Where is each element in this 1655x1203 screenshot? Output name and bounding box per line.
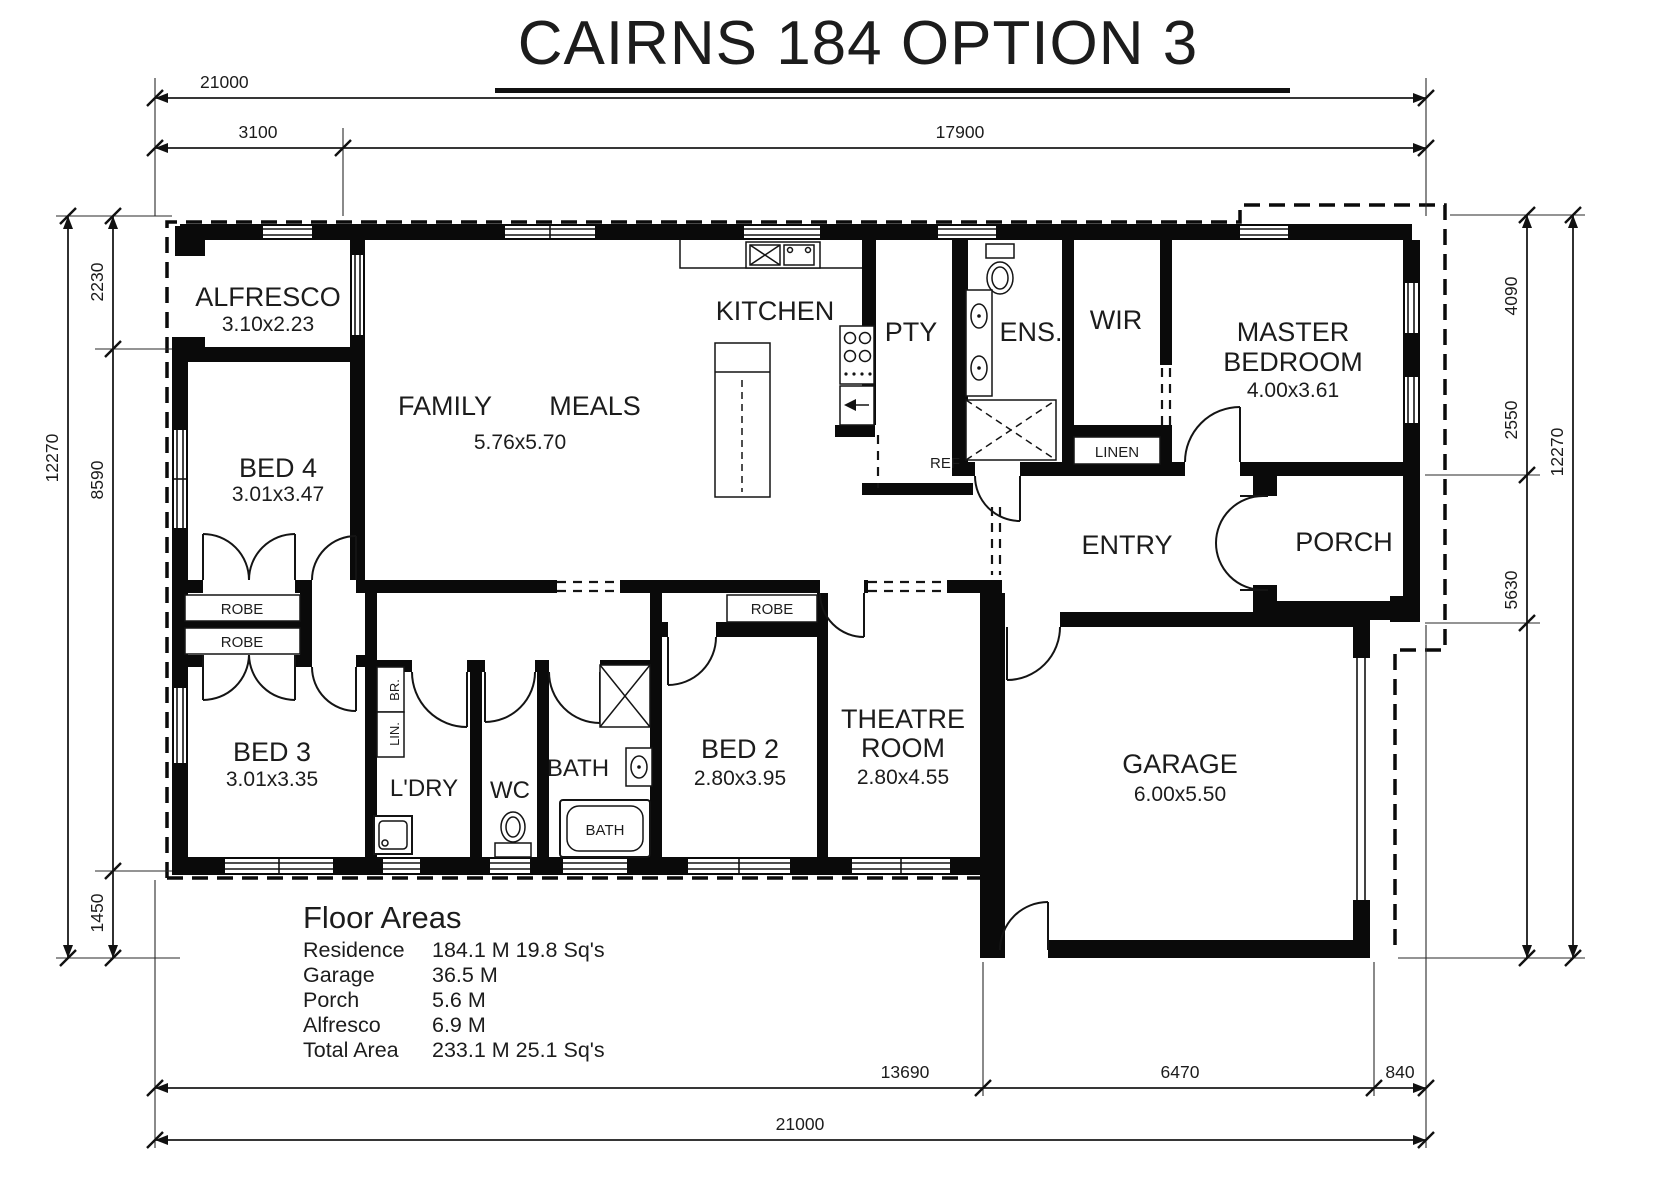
door-arc-robe-bed4 (203, 534, 295, 580)
dim-top-17900: 17900 (936, 122, 985, 142)
floor-area-label: Alfresco (303, 1013, 381, 1037)
dim-bottom-13690: 13690 (881, 1062, 930, 1082)
label-porch: PORCH (1295, 527, 1393, 557)
dim-top-3100: 3100 (239, 122, 278, 142)
title-underline (495, 88, 1290, 93)
vanity-basin-icon (626, 748, 652, 786)
door-arc-entry-double (1216, 496, 1268, 590)
floor-plan-drawing: CAIRNS 184 OPTION 3 (0, 0, 1655, 1203)
label-bed2: BED 2 (701, 734, 779, 764)
kitchen-bench-icon (680, 240, 862, 268)
dim-right-5630: 5630 (1501, 570, 1521, 609)
toilet-icon (495, 812, 531, 857)
dim-right-12270: 12270 (1547, 427, 1567, 476)
dim-left-2230: 2230 (87, 262, 107, 301)
label-pty: PTY (885, 317, 938, 347)
floor-area-label: Total Area (303, 1038, 399, 1062)
label-bath-tub: BATH (586, 822, 625, 839)
door-arc-bed4 (312, 536, 356, 580)
label-linen: LINEN (1095, 444, 1139, 461)
garage-panel-door-icon (1357, 658, 1365, 900)
dim-left-12270: 12270 (42, 433, 62, 482)
dim-top-total: 21000 (147, 72, 1434, 216)
island-bench-icon (715, 343, 770, 497)
label-wir: WIR (1090, 305, 1142, 335)
dim-left-8590: 8590 (87, 460, 107, 499)
floor-area-value: 6.9 M (432, 1013, 486, 1037)
dim-bottom-segments: 13690 6470 840 (147, 625, 1434, 1148)
toilet-icon (986, 244, 1014, 294)
label-theatre-size: 2.80x4.55 (857, 766, 949, 789)
floor-area-value: 233.1 M 25.1 Sq's (432, 1038, 605, 1062)
label-theatre-line1: THEATRE (841, 704, 965, 734)
floor-areas: Floor Areas Residence 184.1 M 19.8 Sq's … (303, 900, 605, 1062)
dim-bottom-total: 21000 (147, 1114, 1434, 1148)
label-kitchen: KITCHEN (716, 296, 835, 326)
door-arc-garage-internal (1007, 627, 1060, 680)
floor-area-value: 36.5 M (432, 963, 498, 987)
dim-bottom-6470: 6470 (1161, 1062, 1200, 1082)
label-bath: BATH (547, 755, 609, 782)
label-robe-bed3: ROBE (221, 634, 264, 651)
label-bed4-size: 3.01x3.47 (232, 483, 324, 506)
label-ens: ENS. (999, 317, 1062, 347)
label-theatre-line2: ROOM (861, 733, 945, 763)
label-robe-bed4: ROBE (221, 601, 264, 618)
page-title: CAIRNS 184 OPTION 3 (518, 9, 1199, 78)
label-alfresco-size: 3.10x2.23 (222, 313, 314, 336)
label-meals: MEALS (549, 391, 641, 421)
door-arc-ens (975, 476, 1020, 521)
label-lin: LIN. (387, 722, 402, 746)
door-arc-garage-rear (1000, 902, 1048, 950)
label-garage-size: 6.00x5.50 (1134, 783, 1226, 806)
shower-icon (966, 400, 1056, 460)
dim-top-segments: 3100 17900 (147, 122, 1434, 216)
dim-bottom-840: 840 (1385, 1062, 1414, 1082)
label-bed4: BED 4 (239, 453, 317, 483)
label-master-line2: BEDROOM (1223, 347, 1363, 377)
dim-bottom-21000: 21000 (776, 1114, 825, 1134)
cooktop-icon (840, 326, 874, 384)
door-arc-bed2 (668, 637, 716, 685)
dim-right-2550: 2550 (1501, 400, 1521, 439)
door-arc-wc (485, 672, 535, 722)
door-arc-bed3 (312, 667, 356, 711)
floor-area-label: Porch (303, 988, 359, 1012)
dim-right-4090: 4090 (1501, 276, 1521, 315)
dim-top-21000: 21000 (200, 72, 249, 92)
floor-area-value: 5.6 M (432, 988, 486, 1012)
window-icon (352, 255, 363, 335)
label-living-size: 5.76x5.70 (474, 431, 566, 454)
door-arc-laundry (412, 672, 467, 727)
label-entry: ENTRY (1081, 530, 1172, 560)
label-bed3-size: 3.01x3.35 (226, 768, 318, 791)
vanity-basin-icon (966, 290, 992, 396)
label-robe-bed2: ROBE (751, 601, 794, 618)
label-family: FAMILY (398, 391, 492, 421)
dim-left: 2230 8590 1450 12270 (42, 208, 180, 966)
label-ldry: L'DRY (390, 775, 458, 802)
label-bed3: BED 3 (233, 737, 311, 767)
floor-areas-heading: Floor Areas (303, 900, 462, 935)
label-ref: REF (930, 455, 960, 472)
label-wc: WC (490, 777, 530, 804)
door-arc-robe-bed3 (203, 655, 295, 700)
plan-title: CAIRNS 184 OPTION 3 (495, 9, 1290, 93)
direction-arrow-icon (840, 386, 874, 425)
shower-icon (600, 665, 650, 727)
label-master-line1: MASTER (1237, 317, 1350, 347)
floor-area-value: 184.1 M 19.8 Sq's (432, 938, 605, 962)
floor-area-label: Garage (303, 963, 375, 987)
door-arc-master (1185, 407, 1240, 462)
label-garage: GARAGE (1122, 749, 1238, 779)
door-arc-bath (549, 672, 600, 723)
label-br: BR. (387, 679, 402, 701)
label-bed2-size: 2.80x3.95 (694, 767, 786, 790)
floor-area-label: Residence (303, 938, 405, 962)
floor-plan-page: CAIRNS 184 OPTION 3 (0, 0, 1655, 1203)
laundry-tub-icon (374, 816, 412, 854)
label-alfresco: ALFRESCO (195, 282, 341, 312)
label-master-size: 4.00x3.61 (1247, 379, 1339, 402)
dim-left-1450: 1450 (87, 893, 107, 932)
